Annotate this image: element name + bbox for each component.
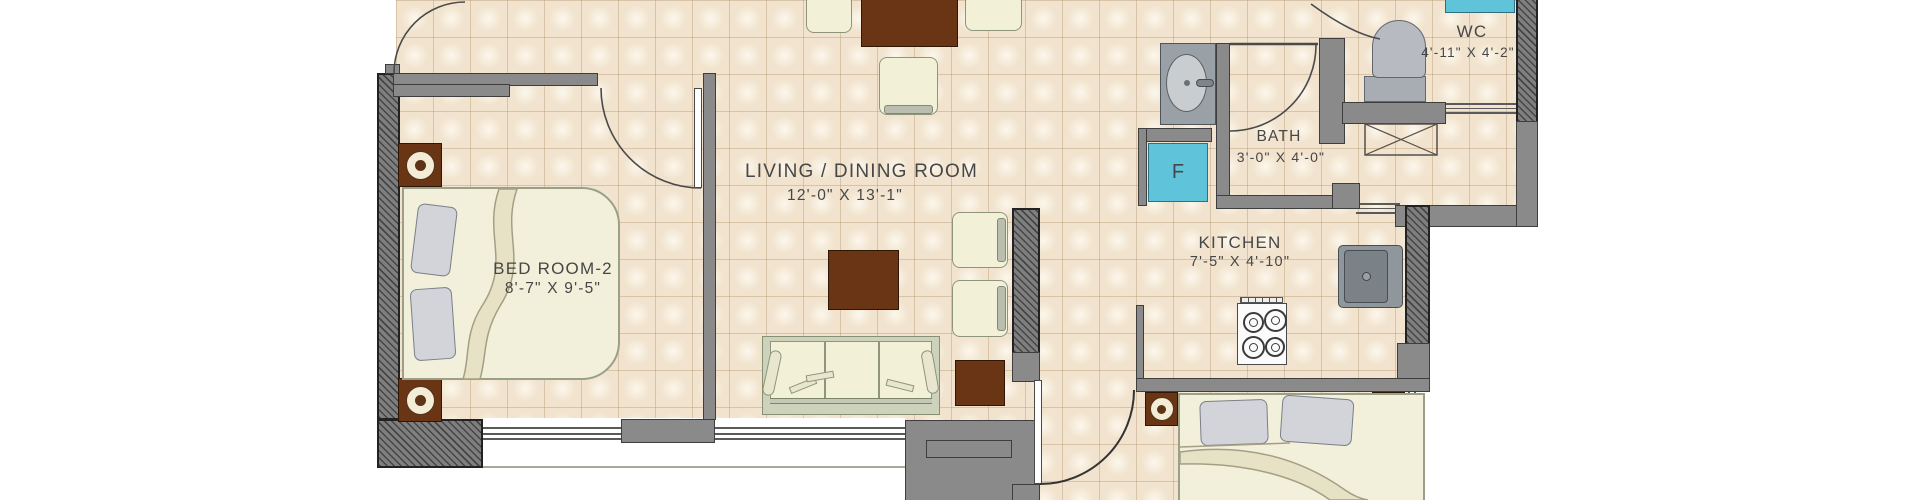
room-label-bath: BATH	[1239, 128, 1319, 146]
door-swing-arc	[1230, 45, 1316, 131]
room-dims-kitchen: 7'-5" X 4'-10"	[1180, 254, 1300, 271]
door-swing-arc	[1040, 390, 1134, 484]
floor-plan: F	[0, 0, 1920, 500]
plan-linework	[0, 0, 1920, 500]
door-swing-arc	[1311, 4, 1380, 39]
room-label-wc: WC	[1432, 22, 1512, 42]
room-dims-living: 12'-0" X 13'-1"	[775, 187, 915, 205]
room-label-kitchen: KITCHEN	[1180, 233, 1300, 253]
duct-shaft	[1365, 124, 1437, 155]
door-swing-arc	[601, 88, 701, 188]
room-label-living: LIVING / DINING ROOM	[745, 161, 965, 183]
room-dims-bath: 3'-0" X 4'-0"	[1221, 149, 1341, 165]
room-dims-wc: 4'-11" X 4'-2"	[1408, 45, 1528, 61]
blanket-fold	[1180, 449, 1368, 500]
room-label-bedroom2: BED ROOM-2	[483, 259, 623, 279]
room-dims-bedroom2: 8'-7" X 9'-5"	[483, 280, 623, 298]
blanket-edge	[1180, 443, 1290, 447]
door-swing-arc	[394, 2, 465, 73]
